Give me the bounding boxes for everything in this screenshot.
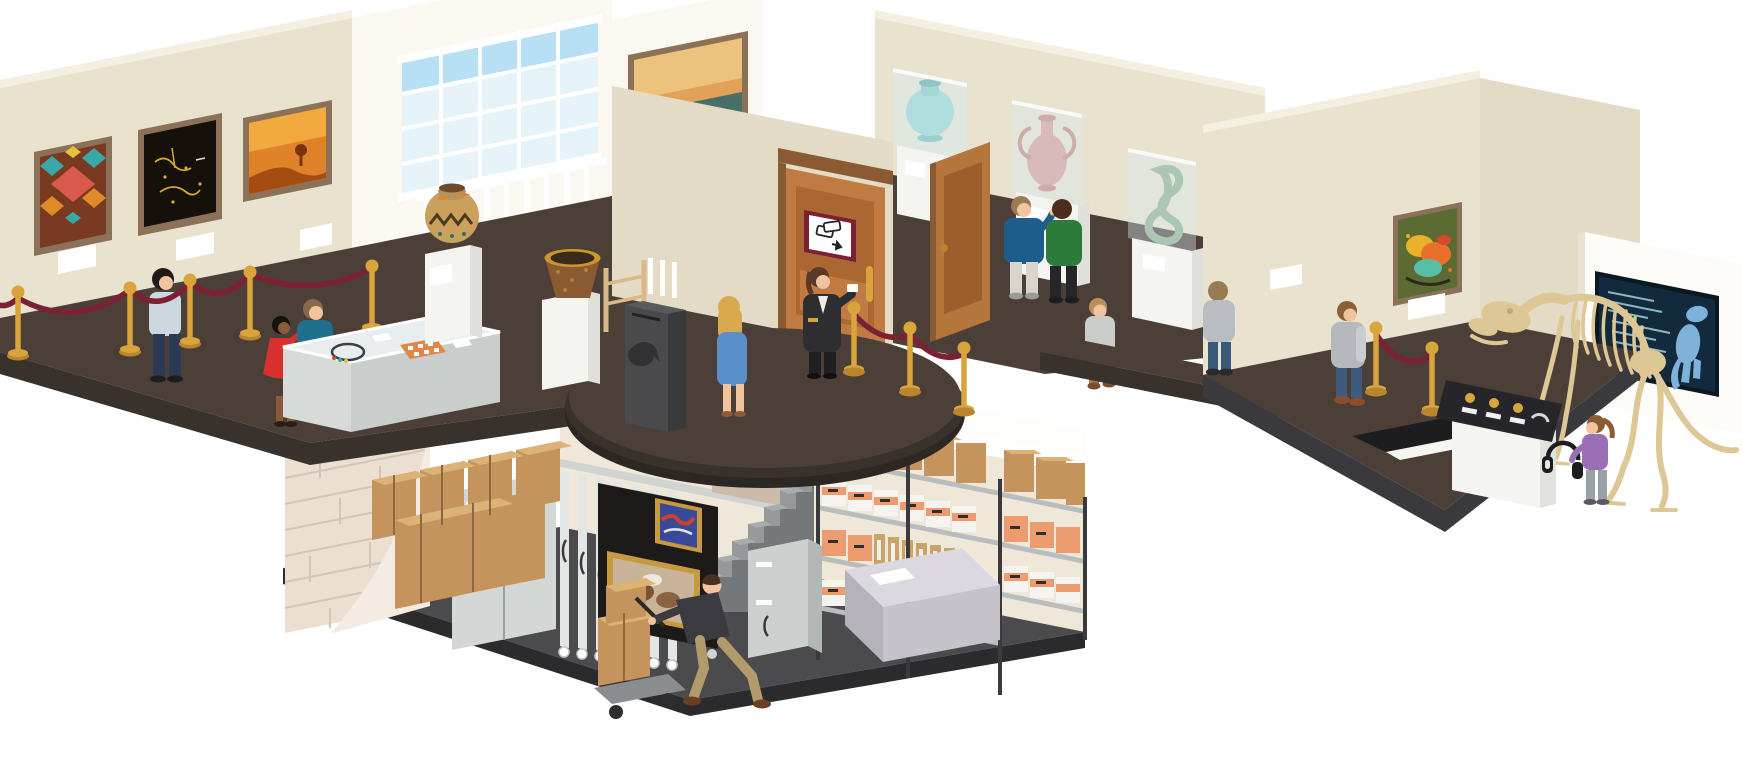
storage-cabinet [748,539,822,658]
leg [276,396,283,422]
leg [153,334,165,376]
leg [1336,368,1347,398]
leg [1066,266,1077,298]
woven-basket-pedestal [542,249,601,390]
leg [736,384,744,412]
desert-sunset-painting [243,100,332,202]
ticket [847,284,858,292]
torso [1203,300,1235,342]
arm [1356,326,1366,362]
leg [1026,262,1038,294]
torso [1004,218,1044,264]
leg [1586,470,1595,500]
leg [824,352,836,374]
abstract-splash-painting [1393,202,1462,306]
museum-isometric-illustration [0,0,1742,769]
skeleton-eye [1507,308,1513,314]
worker-shoe [683,697,701,706]
leg [1050,266,1061,298]
ticket-icon [824,221,841,232]
worker-shoe [753,700,771,709]
leg [1221,342,1231,370]
gold-door-handle [866,266,873,302]
leg [1010,262,1022,294]
leg [1351,368,1362,398]
dark-gold-abstract-painting [138,113,222,236]
right-gallery [1203,70,1742,532]
leg [1208,342,1218,370]
hair [1208,281,1228,301]
jade-sculpture-glass-case [1128,148,1203,330]
leg [1598,470,1607,500]
torso [1046,220,1082,266]
geometric-textile-art [34,136,112,256]
patterned-pot-pedestal [425,184,482,345]
dress [717,332,747,386]
leg [169,334,181,376]
leg [809,352,821,374]
donation-box [625,301,686,432]
ponytail [1603,420,1612,438]
door-jamb [778,162,786,340]
museum-illustration-stage [0,0,1742,769]
name-badge [808,318,818,322]
leg [723,384,731,412]
hair [1052,199,1072,219]
glass-cover [1012,100,1082,206]
torso [1582,434,1608,470]
balcony-railing [648,258,677,298]
